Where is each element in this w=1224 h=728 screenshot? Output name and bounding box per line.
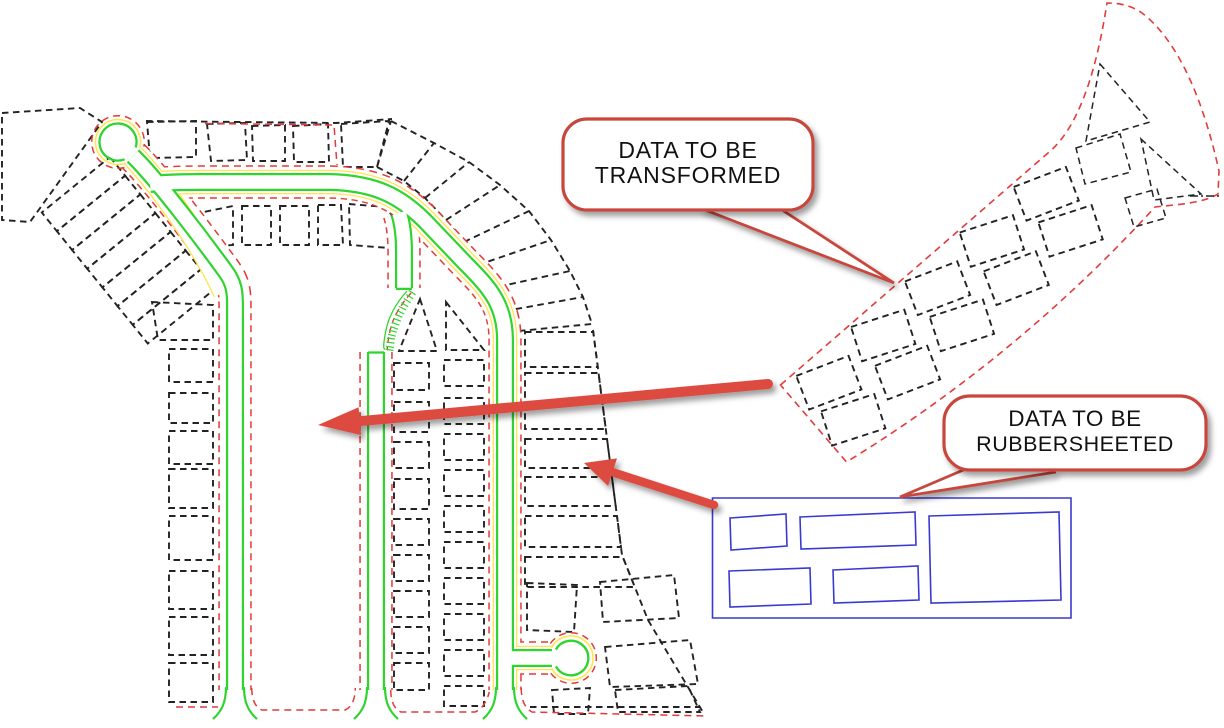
svg-text:DATA TO BE: DATA TO BE — [618, 137, 757, 163]
svg-text:RUBBERSHEETED: RUBBERSHEETED — [976, 432, 1174, 456]
svg-text:TRANSFORMED: TRANSFORMED — [595, 162, 781, 188]
svg-text:DATA TO BE: DATA TO BE — [1008, 406, 1141, 431]
